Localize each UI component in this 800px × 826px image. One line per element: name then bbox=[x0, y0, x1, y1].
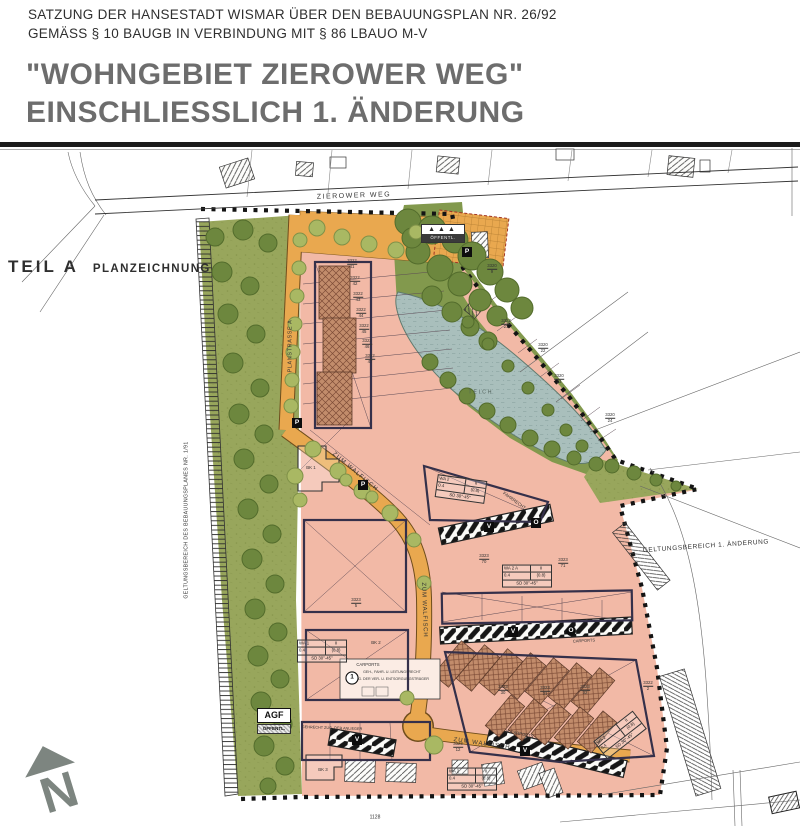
satzung-line-2: GEMÄSS § 10 BAUGB IN VERBINDUNG MIT § 86… bbox=[28, 26, 428, 41]
north-letter: N bbox=[23, 763, 95, 822]
agf-box: AGF ÖFFENTL. bbox=[257, 708, 291, 734]
part-a-heading: TEIL APLANZEICHNUNG bbox=[8, 257, 211, 277]
satzung-line-1: SATZUNG DER HANSESTADT WISMAR ÜBER DEN B… bbox=[28, 7, 557, 22]
public-green-label: ÖFFENTL. bbox=[422, 234, 464, 241]
part-a-label: TEIL A bbox=[8, 257, 79, 276]
public-green-legend-box: ▲▲▲ ÖFFENTL. bbox=[421, 224, 465, 243]
agf-sub-label: ÖFFENTL. bbox=[257, 724, 291, 734]
plan-title-line-2: EINSCHLIESSLICH 1. ÄNDERUNG bbox=[26, 96, 525, 130]
agf-label: AGF bbox=[257, 708, 291, 723]
scanned-plan-page: SATZUNG DER HANSESTADT WISMAR ÜBER DEN B… bbox=[0, 0, 800, 826]
existing-building-block bbox=[317, 266, 356, 425]
tree-symbols: ▲▲▲ bbox=[422, 225, 464, 234]
scan-separator-band bbox=[0, 142, 800, 147]
plan-title-line-1: "WOHNGEBIET ZIEROWER WEG" bbox=[26, 58, 524, 92]
part-a-name: PLANZEICHNUNG bbox=[93, 263, 211, 275]
